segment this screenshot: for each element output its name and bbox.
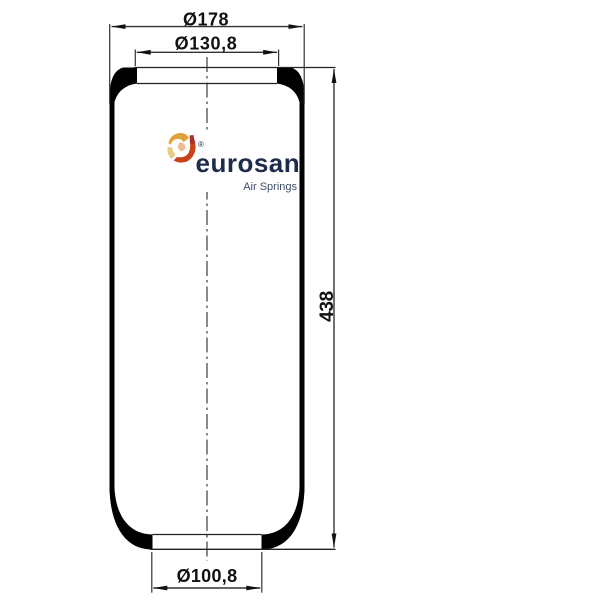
svg-text:eurosan: eurosan bbox=[196, 148, 301, 178]
svg-text:438: 438 bbox=[317, 291, 338, 322]
svg-text:Air Springs: Air Springs bbox=[243, 181, 297, 193]
svg-text:Ø130,8: Ø130,8 bbox=[175, 34, 238, 54]
svg-text:Ø100,8: Ø100,8 bbox=[177, 566, 238, 586]
svg-text:Ø178: Ø178 bbox=[183, 9, 229, 29]
